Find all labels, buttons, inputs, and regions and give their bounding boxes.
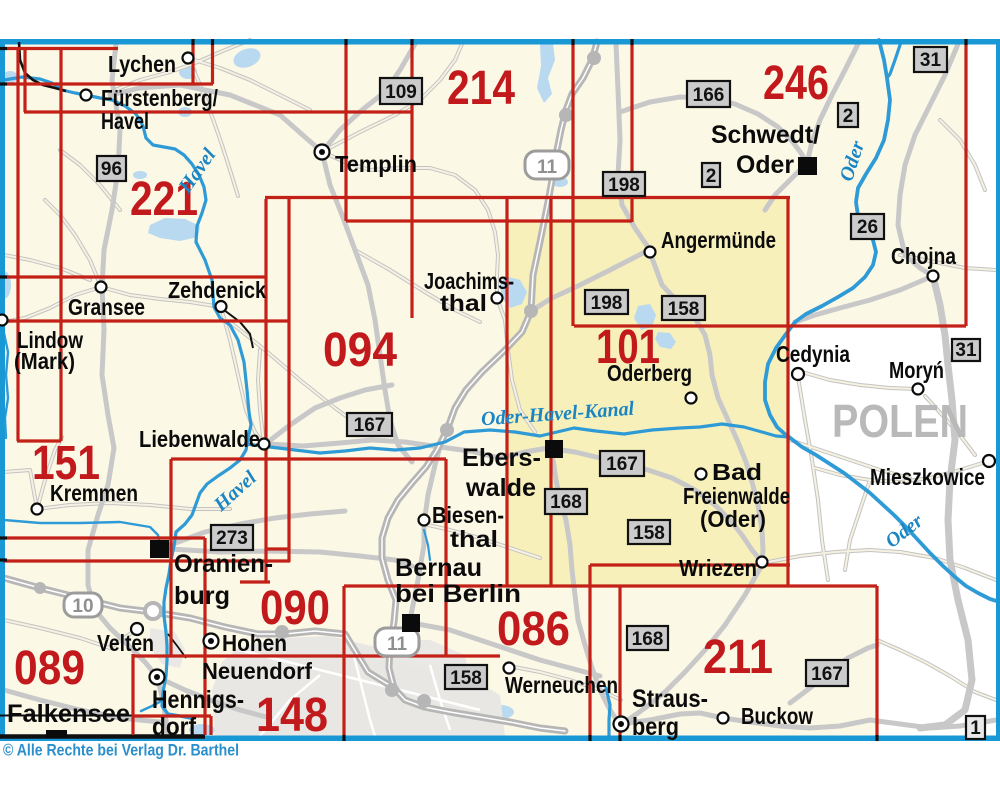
- svg-text:11: 11: [537, 157, 558, 178]
- svg-text:Angermünde: Angermünde: [661, 227, 776, 253]
- svg-text:198: 198: [608, 175, 640, 196]
- svg-text:Buckow: Buckow: [741, 703, 813, 729]
- svg-text:Straus-: Straus-: [632, 685, 708, 713]
- svg-text:Gransee: Gransee: [68, 294, 145, 320]
- svg-text:berg: berg: [632, 713, 679, 741]
- svg-text:Wriezen: Wriezen: [679, 555, 757, 581]
- svg-text:Bad: Bad: [712, 459, 762, 485]
- svg-text:086: 086: [497, 603, 570, 656]
- svg-text:31: 31: [920, 50, 942, 71]
- svg-text:Falkensee: Falkensee: [7, 700, 130, 728]
- svg-text:96: 96: [101, 159, 122, 180]
- svg-text:Lychen: Lychen: [108, 51, 176, 77]
- svg-text:168: 168: [632, 629, 664, 650]
- svg-text:1: 1: [970, 718, 981, 739]
- svg-text:walde: walde: [465, 474, 536, 502]
- svg-text:POLEN: POLEN: [832, 395, 968, 447]
- svg-text:167: 167: [811, 664, 843, 685]
- svg-text:273: 273: [216, 528, 248, 549]
- svg-text:148: 148: [256, 689, 328, 742]
- svg-text:Werneuchen: Werneuchen: [505, 672, 618, 698]
- svg-text:11: 11: [387, 634, 408, 655]
- svg-text:Hennigs-: Hennigs-: [152, 686, 244, 714]
- svg-text:Ebers-: Ebers-: [462, 444, 541, 472]
- svg-text:10: 10: [72, 596, 93, 617]
- svg-text:2: 2: [843, 106, 854, 127]
- svg-text:246: 246: [763, 57, 829, 110]
- svg-text:158: 158: [450, 668, 482, 689]
- svg-text:094: 094: [323, 324, 397, 377]
- svg-text:109: 109: [385, 82, 417, 103]
- svg-text:Oranien-: Oranien-: [174, 550, 273, 578]
- svg-text:© Alle Rechte bei Verlag Dr. B: © Alle Rechte bei Verlag Dr. Barthel: [3, 742, 239, 760]
- svg-text:151: 151: [32, 437, 100, 490]
- svg-text:101: 101: [596, 321, 660, 374]
- svg-text:thal: thal: [450, 526, 498, 552]
- svg-text:Zehdenick: Zehdenick: [168, 277, 266, 303]
- svg-text:burg: burg: [174, 582, 230, 610]
- svg-text:Neuendorf: Neuendorf: [202, 658, 312, 684]
- svg-text:Bernau: Bernau: [395, 554, 482, 582]
- svg-text:214: 214: [447, 62, 515, 115]
- svg-text:Biesen-: Biesen-: [432, 502, 504, 528]
- svg-text:168: 168: [550, 492, 582, 513]
- svg-text:Schwedt/: Schwedt/: [711, 121, 820, 149]
- svg-text:198: 198: [591, 293, 623, 314]
- svg-text:Moryń: Moryń: [889, 357, 944, 383]
- svg-text:Havel: Havel: [101, 108, 149, 134]
- svg-text:211: 211: [703, 631, 773, 684]
- svg-text:31: 31: [955, 340, 977, 361]
- svg-text:158: 158: [633, 523, 665, 544]
- svg-text:(Mark): (Mark): [14, 348, 75, 374]
- svg-text:Velten: Velten: [97, 630, 154, 656]
- svg-text:Cedynia: Cedynia: [776, 341, 850, 367]
- svg-text:thal: thal: [440, 290, 487, 316]
- svg-text:167: 167: [606, 454, 638, 475]
- svg-text:26: 26: [857, 217, 878, 238]
- svg-text:166: 166: [693, 85, 725, 106]
- svg-text:158: 158: [668, 299, 700, 320]
- svg-text:090: 090: [260, 582, 330, 635]
- svg-text:Mieszkowice: Mieszkowice: [870, 464, 985, 490]
- svg-text:dorf: dorf: [152, 713, 197, 741]
- svg-text:Liebenwalde: Liebenwalde: [139, 426, 260, 452]
- svg-text:2: 2: [706, 166, 717, 187]
- svg-text:089: 089: [14, 642, 85, 695]
- svg-text:Chojna: Chojna: [891, 243, 956, 269]
- svg-text:167: 167: [354, 415, 386, 436]
- svg-text:(Oder): (Oder): [700, 506, 766, 532]
- svg-text:Templin: Templin: [335, 151, 417, 177]
- svg-text:Oder: Oder: [736, 151, 794, 179]
